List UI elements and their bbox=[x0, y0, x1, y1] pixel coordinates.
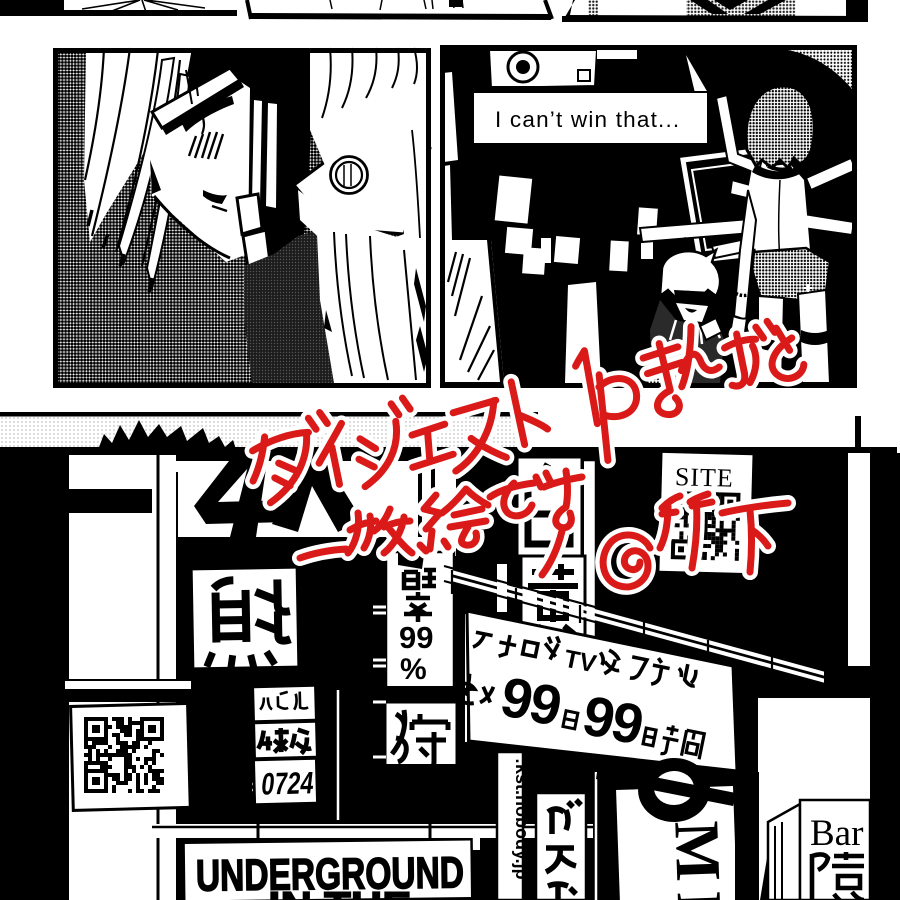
svg-text:0724: 0724 bbox=[260, 765, 316, 801]
svg-text:I can’t win that...: I can’t win that... bbox=[495, 107, 680, 132]
svg-text:IN THE: IN THE bbox=[268, 884, 411, 900]
svg-text:%: % bbox=[400, 653, 427, 686]
svg-text::kst.nobody.jp: :kst.nobody.jp bbox=[512, 758, 532, 880]
svg-text:Bar: Bar bbox=[810, 813, 863, 854]
svg-text:I: I bbox=[664, 890, 736, 900]
svg-text:M: M bbox=[661, 820, 734, 883]
svg-text:99: 99 bbox=[399, 620, 433, 655]
